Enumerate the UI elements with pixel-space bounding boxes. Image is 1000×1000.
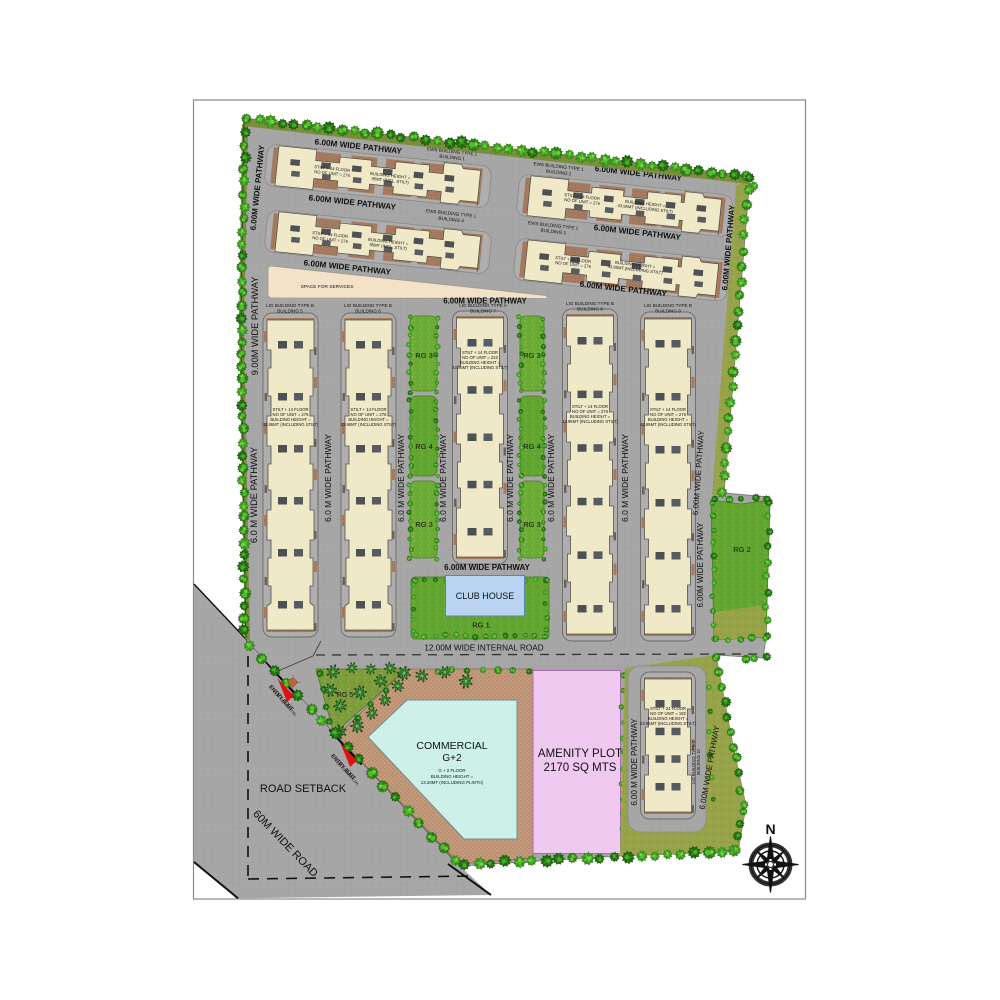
svg-text:RG 1: RG 1 (472, 621, 490, 630)
svg-text:6.00 M WIDE PATHWAY: 6.00 M WIDE PATHWAY (630, 718, 639, 806)
svg-text:6.0 M WIDE PATHWAY: 6.0 M WIDE PATHWAY (249, 447, 259, 543)
svg-text:6.0 M WIDE PATHWAY: 6.0 M WIDE PATHWAY (323, 434, 333, 522)
svg-text:9.00M WIDE PATHWAY: 9.00M WIDE PATHWAY (250, 277, 260, 376)
svg-text:G + 2 FLOOR: G + 2 FLOOR (438, 768, 465, 773)
svg-text:AMENITY PLOT: AMENITY PLOT (538, 748, 622, 760)
svg-text:COMMERCIAL: COMMERCIAL (416, 740, 487, 752)
svg-text:43.95MT (INCLUDING STILT): 43.95MT (INCLUDING STILT) (452, 365, 508, 370)
svg-text:43.95MT (INCLUDING STILT): 43.95MT (INCLUDING STILT) (341, 422, 397, 427)
svg-text:43.95MT (INCLUDING STILT): 43.95MT (INCLUDING STILT) (640, 422, 696, 427)
svg-text:RG 3: RG 3 (415, 520, 433, 529)
svg-text:LIG BUILDING TYPE B: LIG BUILDING TYPE B (644, 303, 692, 308)
svg-text:SPACE FOR SERVICES: SPACE FOR SERVICES (301, 284, 354, 290)
svg-text:13.20MT (INCLUDING PLINTH): 13.20MT (INCLUDING PLINTH) (421, 780, 484, 785)
svg-text:LIG BUILDING TYPE B: LIG BUILDING TYPE B (344, 303, 392, 308)
svg-text:43.95MT (INCLUDING STILT): 43.95MT (INCLUDING STILT) (263, 422, 319, 427)
svg-text:RG 3: RG 3 (415, 351, 433, 360)
svg-text:6.00M WIDE PATHWAY: 6.00M WIDE PATHWAY (696, 522, 705, 608)
svg-text:RG 4: RG 4 (523, 442, 541, 451)
svg-text:LIG BUILDING TYPE B: LIG BUILDING TYPE B (266, 303, 314, 308)
svg-text:6.0 M WIDE PATHWAY: 6.0 M WIDE PATHWAY (438, 434, 448, 522)
svg-text:6.0 M WIDE PATHWAY: 6.0 M WIDE PATHWAY (546, 434, 556, 522)
svg-text:6.0 M WIDE PATHWAY: 6.0 M WIDE PATHWAY (396, 434, 406, 522)
svg-text:BUILDING 6: BUILDING 6 (355, 309, 381, 314)
svg-text:12.00M WIDE INTERNAL ROAD: 12.00M WIDE INTERNAL ROAD (424, 644, 543, 653)
svg-text:RG 4: RG 4 (415, 442, 433, 451)
svg-text:2170 SQ MTS: 2170 SQ MTS (544, 762, 617, 774)
svg-text:BUILDING 5: BUILDING 5 (277, 309, 303, 314)
svg-text:G+2: G+2 (442, 753, 462, 764)
svg-text:6.0 M WIDE PATHWAY: 6.0 M WIDE PATHWAY (505, 434, 515, 522)
svg-text:CLUB HOUSE: CLUB HOUSE (456, 591, 515, 601)
svg-text:BUILDING 7: BUILDING 7 (470, 309, 496, 314)
svg-text:6.00M WIDE PATHWAY: 6.00M WIDE PATHWAY (443, 297, 527, 306)
svg-text:BUILDING 8: BUILDING 8 (577, 307, 603, 312)
svg-text:6.0 M WIDE PATHWAY: 6.0 M WIDE PATHWAY (620, 434, 630, 522)
svg-text:6.00M WIDE PATHWAY: 6.00M WIDE PATHWAY (444, 563, 530, 572)
svg-text:N: N (765, 821, 775, 837)
svg-text:43.95MT (INCLUDING STILT): 43.95MT (INCLUDING STILT) (640, 721, 696, 726)
svg-text:BUILDING HEIGHT =: BUILDING HEIGHT = (431, 774, 474, 779)
svg-text:BUILDING 10: BUILDING 10 (696, 749, 701, 775)
svg-text:RG 5: RG 5 (337, 692, 353, 699)
svg-text:43.95MT (INCLUDING STILT): 43.95MT (INCLUDING STILT) (562, 419, 618, 424)
svg-text:ROAD SETBACK: ROAD SETBACK (260, 783, 347, 795)
svg-text:BUILDING 9: BUILDING 9 (655, 309, 681, 314)
svg-text:RG 3: RG 3 (523, 351, 541, 360)
svg-text:RG 2: RG 2 (733, 545, 751, 554)
svg-text:LIG BUILDING TYPE B: LIG BUILDING TYPE B (566, 301, 614, 306)
svg-text:RG 3: RG 3 (523, 520, 541, 529)
